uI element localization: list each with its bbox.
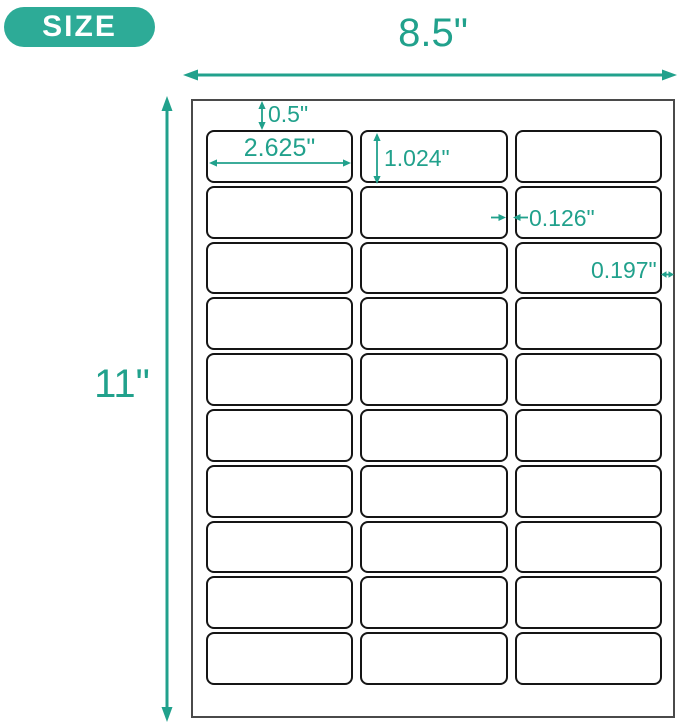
label-cell: [360, 576, 507, 629]
label-cell: [206, 409, 353, 462]
page-height-value: 11": [86, 364, 158, 404]
size-badge: SIZE: [4, 7, 155, 47]
top-margin-value: 0.5": [268, 102, 308, 127]
label-cell: [206, 242, 353, 295]
right-margin-value: 0.197": [591, 258, 657, 283]
label-cell: [515, 297, 662, 350]
label-cell: [206, 465, 353, 518]
label-cell: [515, 130, 662, 183]
label-cell: [360, 186, 507, 239]
label-cell: [206, 297, 353, 350]
label-cell: [360, 465, 507, 518]
label-cell: [206, 353, 353, 406]
label-width-arrow: [209, 157, 351, 169]
label-cell: [360, 632, 507, 685]
right-margin-arrow: [661, 269, 674, 280]
size-badge-label: SIZE: [42, 10, 117, 44]
top-margin-arrow: [256, 101, 268, 130]
label-cell: [360, 409, 507, 462]
label-height-value: 1.024": [384, 146, 450, 171]
label-cell: [515, 465, 662, 518]
label-cell: [515, 521, 662, 574]
label-cell: [515, 409, 662, 462]
label-cell: [206, 521, 353, 574]
label-cell: [360, 521, 507, 574]
label-cell: [515, 353, 662, 406]
page-width-value: 8.5": [191, 13, 675, 53]
label-cell: [515, 576, 662, 629]
label-cell: [360, 297, 507, 350]
column-gap-arrow-left: [513, 212, 528, 223]
label-cell: [206, 186, 353, 239]
label-cell: [206, 632, 353, 685]
page-height-arrow: [160, 96, 174, 722]
label-sheet: [191, 99, 675, 718]
label-grid: [193, 101, 673, 716]
label-cell: [515, 632, 662, 685]
label-cell: [206, 576, 353, 629]
label-cell: [360, 353, 507, 406]
column-gap-value: 0.126": [529, 206, 595, 231]
label-height-arrow: [371, 133, 383, 184]
size-diagram: SIZE 8.5" 11" 0.5" 2.625" 1.024": [0, 0, 679, 725]
page-width-arrow: [183, 68, 677, 82]
column-gap-arrow-right: [491, 212, 506, 223]
label-cell: [360, 242, 507, 295]
